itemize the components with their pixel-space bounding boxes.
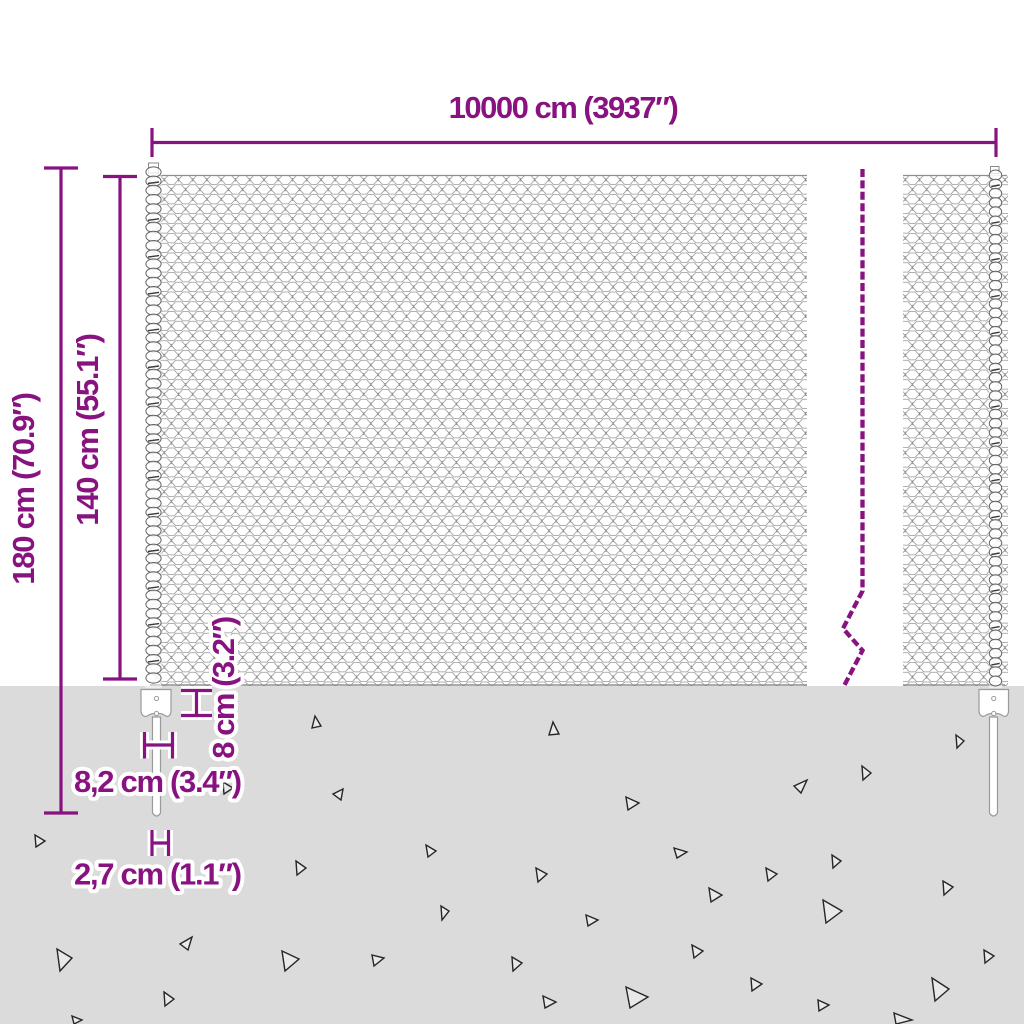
svg-text:8 cm (3.2″): 8 cm (3.2″): [206, 617, 241, 759]
svg-text:140 cm (55.1″): 140 cm (55.1″): [70, 334, 105, 525]
svg-text:180 cm (70.9″): 180 cm (70.9″): [6, 393, 41, 584]
svg-text:8,2 cm (3.4″): 8,2 cm (3.4″): [74, 764, 241, 799]
svg-text:2,7 cm (1.1″): 2,7 cm (1.1″): [74, 857, 241, 892]
svg-text:10000 cm (3937″): 10000 cm (3937″): [449, 90, 678, 125]
